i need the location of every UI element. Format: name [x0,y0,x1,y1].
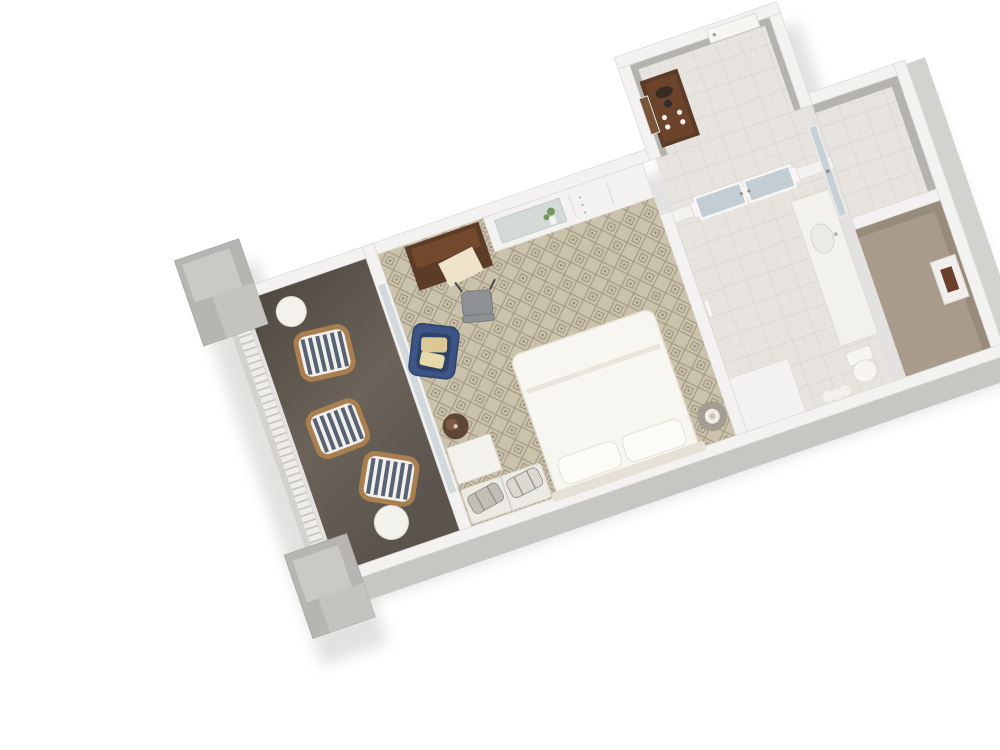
lounge-chair [294,325,355,382]
floorplan-svg [0,0,1000,750]
blue-armchair [408,323,460,380]
floorplan-render [0,0,1000,750]
plan-rotated-group [158,0,1000,668]
lounge-chair [360,452,419,506]
